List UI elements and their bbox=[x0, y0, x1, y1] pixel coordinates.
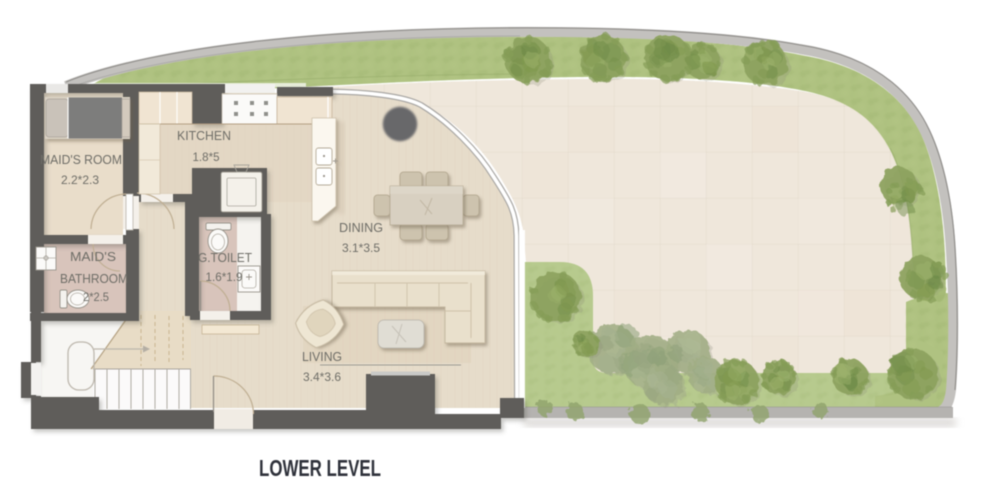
svg-text:DINING: DINING bbox=[339, 220, 383, 235]
svg-text:LOWER LEVEL: LOWER LEVEL bbox=[259, 455, 381, 481]
svg-text:3.1*3.5: 3.1*3.5 bbox=[342, 243, 380, 255]
svg-text:LIVING: LIVING bbox=[302, 349, 342, 364]
svg-text:BATHROOM: BATHROOM bbox=[60, 271, 128, 286]
svg-text:2.2*2.3: 2.2*2.3 bbox=[61, 175, 99, 187]
svg-text:G.TOILET: G.TOILET bbox=[198, 251, 252, 265]
svg-text:3.4*3.6: 3.4*3.6 bbox=[303, 372, 341, 384]
svg-text:1.6*1.9: 1.6*1.9 bbox=[206, 272, 243, 284]
svg-text:MAID'S: MAID'S bbox=[70, 249, 116, 264]
svg-text:MAID'S ROOM: MAID'S ROOM bbox=[40, 152, 122, 167]
svg-text:KITCHEN: KITCHEN bbox=[177, 128, 231, 143]
svg-text:1.8*5: 1.8*5 bbox=[193, 152, 220, 164]
svg-text:2*2.5: 2*2.5 bbox=[83, 292, 109, 304]
